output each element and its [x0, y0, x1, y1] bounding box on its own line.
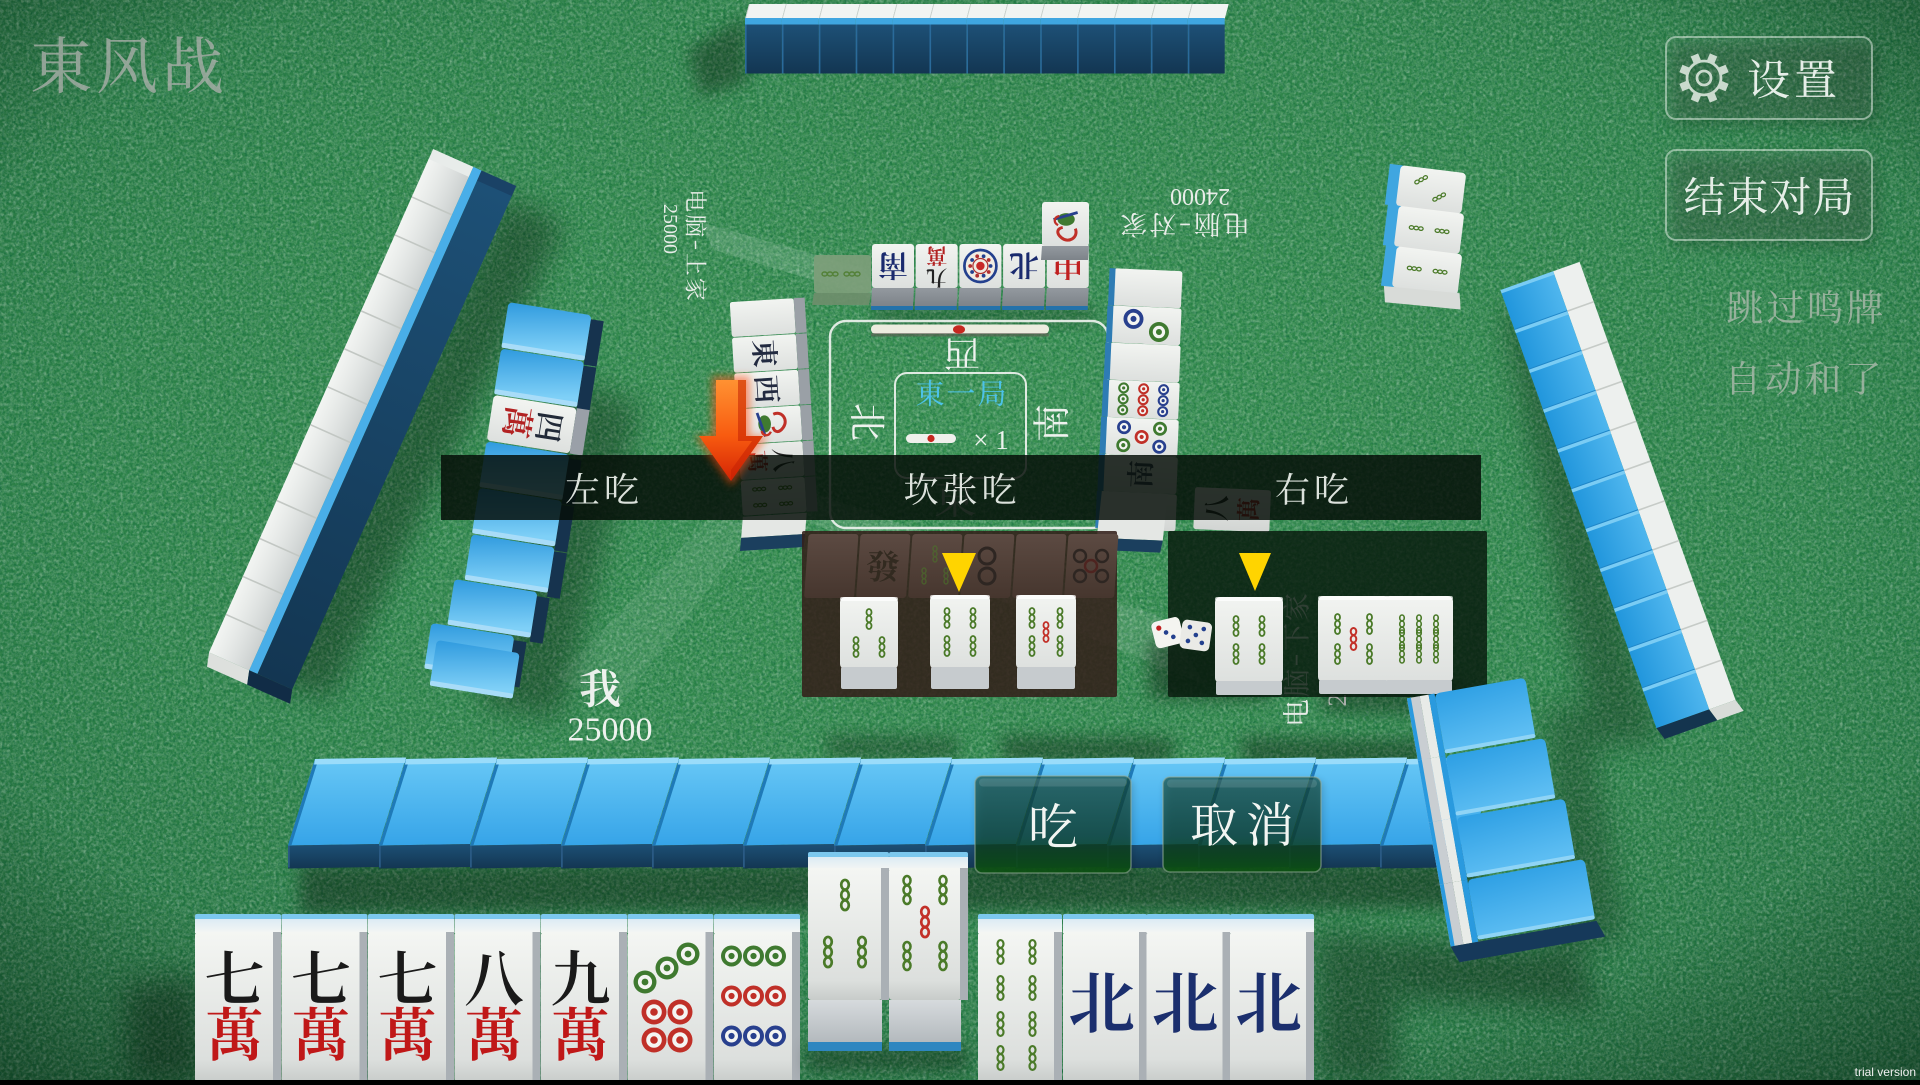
svg-text:× 1: × 1 [973, 425, 1008, 455]
svg-text:25000: 25000 [659, 204, 681, 254]
svg-text:25000: 25000 [568, 712, 653, 749]
svg-text:trial version: trial version [1855, 1065, 1916, 1079]
svg-text:24000: 24000 [1170, 183, 1230, 209]
